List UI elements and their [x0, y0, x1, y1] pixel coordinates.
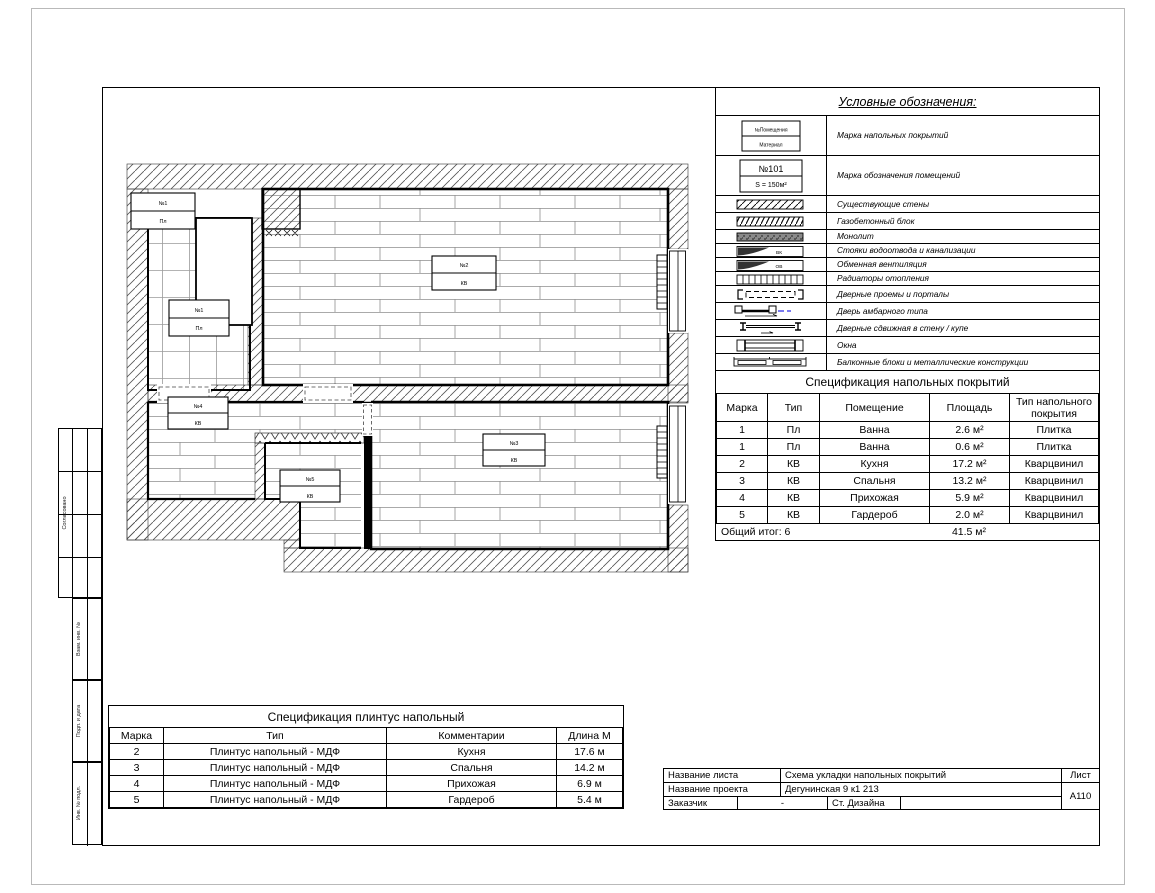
svg-text:КВ: КВ	[461, 281, 468, 287]
svg-text:КВ: КВ	[307, 494, 314, 500]
floor-spec-row: 5КВ Гардероб2.0 м² Кварцвинил	[717, 507, 1099, 524]
legend-item-vent-ov: ОВ Обменная вентиляция	[716, 257, 1099, 271]
floor-spec-row: 4КВ Прихожая5.9 м² Кварцвинил	[717, 490, 1099, 507]
skirting-spec-row: 4Плинтус напольный - МДФ Прихожая6.9 м	[110, 776, 623, 792]
legend-item-room-mark: №101 S = 150м² Марка обозначения помещен…	[716, 155, 1099, 195]
vent-shaft	[262, 189, 300, 236]
stamp-label-sign: Подп. и дата	[76, 705, 82, 737]
title-block: Название листа Схема укладки напольных п…	[663, 768, 1100, 810]
svg-text:№3: №3	[510, 441, 519, 447]
floor-spec-header: Марка Тип Помещение Площадь Тип напольно…	[717, 394, 1099, 422]
radiator-kitchen	[657, 255, 667, 309]
legend-item-aerated-block: Газобетонный блок	[716, 212, 1099, 229]
legend-item-radiators: Радиаторы отопления	[716, 271, 1099, 285]
room-mark-bedroom: №3 КВ	[483, 434, 545, 466]
legend-panel: Условные обозначения: №Помещения Материа…	[715, 87, 1100, 541]
radiator-symbol	[716, 272, 826, 285]
balcony-symbol	[716, 354, 826, 370]
sheet-number: A110	[1061, 783, 1099, 809]
aerated-block-symbol	[716, 213, 826, 229]
aerated-block-wall	[255, 433, 364, 443]
window-bedroom	[668, 404, 688, 504]
svg-text:Материал: Материал	[759, 142, 782, 148]
legend-item-balcony: Балконные блоки и металлические конструк…	[716, 353, 1099, 370]
barn-door-symbol	[716, 303, 826, 319]
floor-spec-row: 3КВ Спальня13.2 м² Кварцвинил	[717, 473, 1099, 490]
legend-item-riser-vk: ВК Стояки водоотвода и канализации	[716, 243, 1099, 257]
legend-item-door-openings: Дверные проемы и порталы	[716, 285, 1099, 302]
skirting-spec-panel: Спецификация плинтус напольный Марка Тип…	[108, 705, 624, 809]
room-mark-hallway: №4 КВ	[168, 397, 228, 429]
svg-text:№5: №5	[306, 477, 315, 483]
svg-text:№2: №2	[460, 263, 469, 269]
floor-spec-total: Общий итог: 6 41.5 м²	[716, 524, 1099, 540]
legend-item-floor-mark: №Помещения Материал Марка напольных покр…	[716, 115, 1099, 155]
room-mark-bath-small: №1 Пл	[131, 193, 195, 229]
stamp-label-approved: Согласовано	[62, 496, 68, 529]
legend-item-sliding-door: Дверные сдвижная в стену / купе	[716, 319, 1099, 336]
floor-spec-title: Спецификация напольных покрытий	[716, 370, 1099, 393]
window-symbol	[716, 337, 826, 353]
skirting-spec-row: 3Плинтус напольный - МДФ Спальня14.2 м	[110, 760, 623, 776]
legend-item-monolith: Монолит	[716, 229, 1099, 243]
total-count: Общий итог: 6	[721, 526, 790, 538]
room-mark-bathroom: №1 Пл	[169, 300, 229, 336]
skirting-spec-row: 5Плинтус напольный - МДФ Гардероб5.4 м	[110, 792, 623, 808]
sheet-label: Лист	[1061, 769, 1099, 783]
skirting-spec-header: Марка Тип Комментарии Длина М	[110, 728, 623, 744]
studio-name: Ст. Дизайна	[828, 797, 901, 809]
svg-text:№Помещения: №Помещения	[754, 127, 787, 133]
room-mark-kitchen: №2 КВ	[432, 256, 496, 290]
floor-spec-row: 1Пл Ванна2.6 м² Плитка	[717, 422, 1099, 439]
room-number-symbol: №101 S = 150м²	[716, 156, 826, 195]
svg-text:№1: №1	[195, 308, 204, 314]
legend-item-barn-door: Дверь амбарного типа	[716, 302, 1099, 319]
legend-title: Условные обозначения:	[716, 88, 1099, 115]
project-name-value: Дегунинская 9 к1 213	[781, 783, 1061, 797]
svg-text:ОВ: ОВ	[776, 264, 783, 270]
project-name-label: Название проекта	[664, 783, 781, 797]
floor-mark-symbol: №Помещения Материал	[716, 116, 826, 155]
total-area: 41.5 м²	[929, 526, 1009, 538]
svg-text:ВК: ВК	[776, 250, 782, 256]
stamp-label-subst: Взам. инв. №	[76, 622, 82, 656]
legend-item-existing-walls: Существующие стены	[716, 195, 1099, 212]
client-label: Заказчик	[664, 797, 738, 809]
floor-plan: №1 Пл №1 Пл №2 КВ №4 КВ №5 КВ	[125, 160, 715, 575]
riser-vk-symbol: ВК	[716, 244, 826, 257]
sheet-name-label: Название листа	[664, 769, 781, 783]
svg-text:Пл: Пл	[195, 326, 202, 332]
existing-walls-symbol	[716, 196, 826, 212]
skirting-spec-title: Спецификация плинтус напольный	[109, 706, 623, 727]
skirting-spec-row: 2Плинтус напольный - МДФ Кухня17.6 м	[110, 744, 623, 760]
floor-spec-table: Марка Тип Помещение Площадь Тип напольно…	[716, 393, 1099, 524]
svg-text:№101: №101	[759, 164, 784, 174]
floor-spec-row: 2КВ Кухня17.2 м² Кварцвинил	[717, 456, 1099, 473]
legend-item-windows: Окна	[716, 336, 1099, 353]
window-kitchen	[668, 249, 688, 333]
floor-spec-row: 1Пл Ванна0.6 м² Плитка	[717, 439, 1099, 456]
sliding-door-symbol	[716, 320, 826, 336]
room-mark-wardrobe: №5 КВ	[280, 470, 340, 502]
client-value: -	[738, 797, 828, 809]
sheet-name-value: Схема укладки напольных покрытий	[781, 769, 1061, 783]
svg-text:КВ: КВ	[195, 421, 202, 427]
radiator-bedroom	[657, 426, 667, 478]
empty-cell	[901, 797, 1061, 809]
svg-text:КВ: КВ	[511, 458, 518, 464]
door-opening-symbol	[716, 286, 826, 302]
svg-text:S = 150м²: S = 150м²	[755, 182, 787, 189]
drawing-sheet: Согласовано Взам. инв. № Подп. и дата Ин…	[0, 0, 1155, 893]
stamp-label-inv: Инв. № подл.	[76, 786, 82, 820]
floor-bedroom	[371, 402, 668, 549]
monolith-symbol	[716, 230, 826, 243]
svg-text:№4: №4	[194, 404, 203, 410]
vent-ov-symbol: ОВ	[716, 258, 826, 271]
svg-text:Пл: Пл	[159, 219, 166, 225]
skirting-spec-table: Марка Тип Комментарии Длина М 2Плинтус н…	[109, 727, 623, 808]
svg-text:№1: №1	[159, 201, 168, 207]
